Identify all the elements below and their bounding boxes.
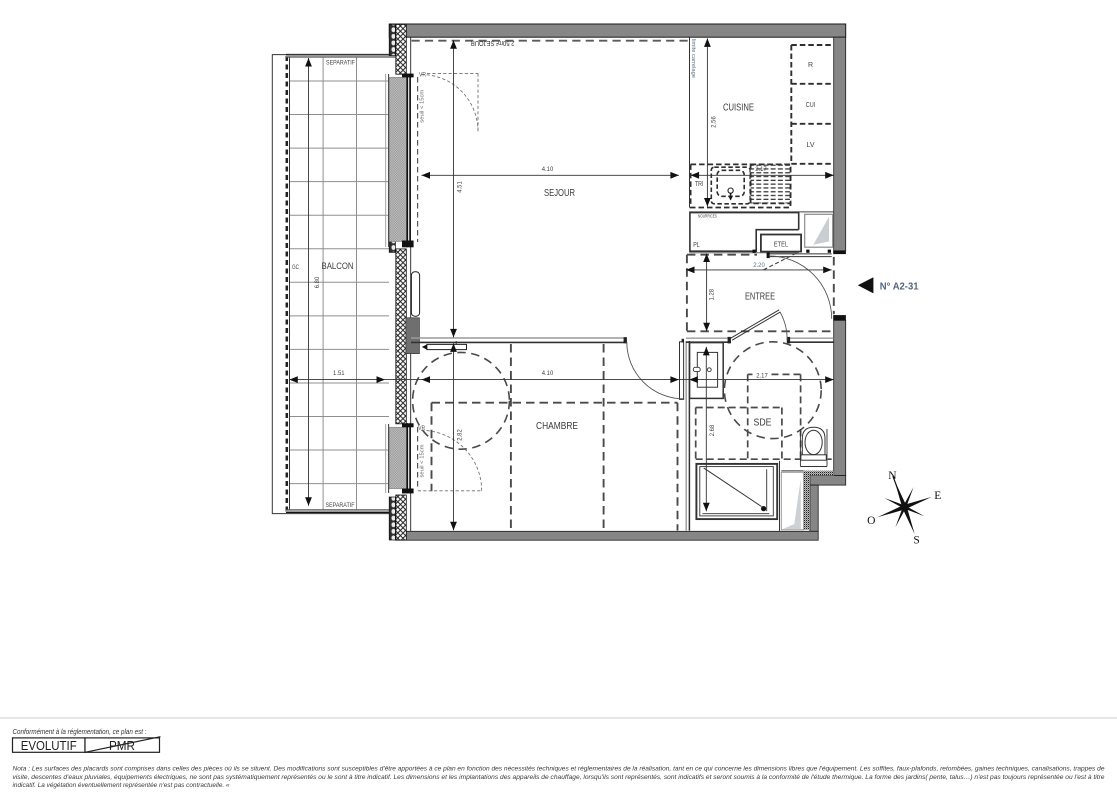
svg-text:S: S xyxy=(913,535,919,547)
svg-text:4.10: 4.10 xyxy=(542,166,554,173)
svg-text:CUI: CUI xyxy=(806,102,816,109)
svg-text:R: R xyxy=(808,62,813,69)
svg-text:LV: LV xyxy=(807,142,815,149)
svg-text:2.17: 2.17 xyxy=(755,166,767,173)
svg-text:N° A2-31: N° A2-31 xyxy=(880,280,919,292)
svg-text:1.28: 1.28 xyxy=(709,289,716,301)
svg-text:CHAMBRE: CHAMBRE xyxy=(536,421,578,432)
svg-text:visite, descentes d'eaux pluvi: visite, descentes d'eaux pluviales, équi… xyxy=(13,774,1105,781)
svg-text:ETEL: ETEL xyxy=(774,240,789,249)
svg-text:E: E xyxy=(934,490,941,502)
svg-text:SEPARATIF: SEPARATIF xyxy=(326,60,355,67)
svg-text:CUISINE: CUISINE xyxy=(723,102,754,113)
svg-text:2.50m² SEJOUR: 2.50m² SEJOUR xyxy=(471,39,515,48)
svg-text:4.51: 4.51 xyxy=(456,181,463,193)
svg-text:VR: VR xyxy=(418,425,425,432)
svg-text:ENTREE: ENTREE xyxy=(745,291,775,302)
svg-text:limite carrelage: limite carrelage xyxy=(690,39,696,78)
svg-text:1.51: 1.51 xyxy=(333,370,345,377)
svg-text:2.20: 2.20 xyxy=(753,262,765,269)
svg-text:NOURRICES: NOURRICES xyxy=(698,214,717,219)
svg-text:TRI: TRI xyxy=(695,179,704,188)
svg-text:seuil < 15cm: seuil < 15cm xyxy=(420,89,426,122)
svg-text:SEPARATIF: SEPARATIF xyxy=(326,502,355,509)
svg-text:4.10: 4.10 xyxy=(542,370,554,377)
svg-text:Nota : Les surfaces des placar: Nota : Les surfaces des placards sont co… xyxy=(13,766,1105,773)
svg-text:SDE: SDE xyxy=(754,417,772,428)
svg-text:SEJOUR: SEJOUR xyxy=(544,188,575,199)
svg-text:PL: PL xyxy=(693,240,700,249)
svg-text:N: N xyxy=(888,470,897,482)
svg-text:O: O xyxy=(867,515,875,527)
svg-text:EVOLUTIF: EVOLUTIF xyxy=(21,739,77,753)
svg-text:GC: GC xyxy=(292,264,299,271)
svg-text:Conformément à la réglementati: Conformément à la réglementation, ce pla… xyxy=(13,727,147,736)
svg-text:indicatif. La végétation évent: indicatif. La végétation éventuellement … xyxy=(13,782,230,789)
svg-text:2.82: 2.82 xyxy=(457,429,464,441)
svg-text:2.68: 2.68 xyxy=(709,424,716,436)
svg-text:2.56: 2.56 xyxy=(710,116,717,128)
svg-text:2.17: 2.17 xyxy=(756,373,768,380)
svg-text:6.80: 6.80 xyxy=(314,276,321,288)
svg-text:seuil < 15cm: seuil < 15cm xyxy=(420,444,426,477)
svg-text:BALCON: BALCON xyxy=(322,261,354,271)
